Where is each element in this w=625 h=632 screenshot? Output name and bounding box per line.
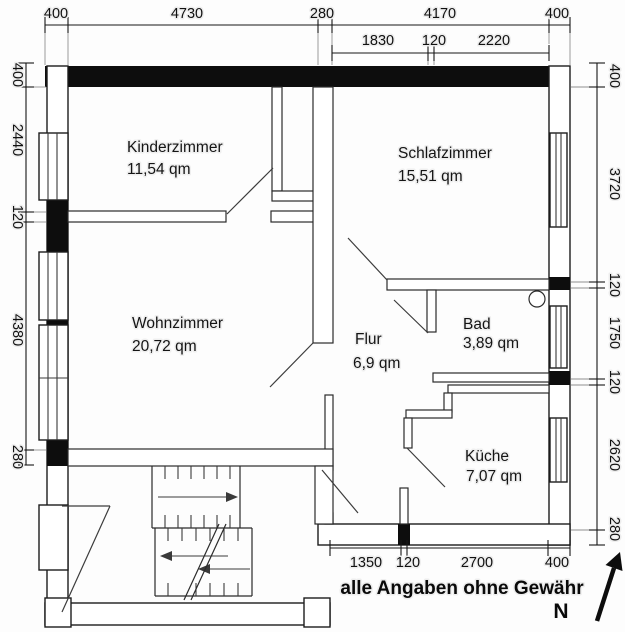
door-kinderzimmer [227, 168, 273, 214]
wall-top [45, 66, 570, 87]
disclaimer-text: alle Angaben ohne Gewähr [340, 578, 584, 599]
wall-bottom-solid [398, 524, 410, 545]
window-wohnzimmer-1 [39, 252, 68, 320]
wall-kinderzimmer-bottom [68, 211, 226, 222]
dim-top-4170: 4170 [424, 6, 456, 22]
dimensions-right: 400 3720 120 1750 120 2620 280 [571, 63, 622, 545]
dim-right-120a: 120 [606, 273, 622, 297]
dim-bottom-2700: 2700 [461, 555, 493, 571]
door-house-entrance-leaf [62, 506, 110, 612]
north-label: N [553, 600, 568, 623]
room-area-kueche: 7,07 qm [466, 468, 522, 485]
wall-bad-bottom [433, 373, 549, 382]
dim-top-4730: 4730 [171, 6, 203, 22]
wall-cap-right [304, 598, 330, 627]
dim-right-1750: 1750 [606, 317, 622, 349]
wall-kueche-nook-h [406, 410, 452, 418]
dim-left-280: 280 [9, 445, 25, 469]
dim-top2-2220: 2220 [478, 33, 510, 49]
floor-plan-page: 400 4730 280 4170 400 1830 120 2220 400 … [0, 0, 625, 632]
door-bad [394, 300, 428, 333]
window-schlafzimmer [550, 133, 567, 227]
door-schlafzimmer [348, 238, 387, 280]
room-area-flur: 6,9 qm [353, 355, 400, 372]
room-label-schlafzimmer: Schlafzimmer [398, 145, 492, 162]
wall-kueche-top [448, 385, 549, 393]
wall-kueche-left-upper [404, 418, 412, 448]
dim-right-3720: 3720 [606, 168, 622, 200]
door-wohnzimmer [270, 343, 313, 387]
dim-top-400a: 400 [44, 6, 68, 22]
window-kueche [550, 418, 567, 482]
wall-stairwell-bottom [45, 603, 330, 625]
wall-kueche-left-lower [400, 488, 408, 524]
wall-corridor [271, 211, 318, 222]
wall-kinderzimmer-right [272, 87, 282, 191]
room-area-schlafzimmer: 15,51 qm [398, 168, 463, 185]
dimensions-top: 400 4730 280 4170 400 1830 120 2220 [44, 6, 570, 65]
door-kueche [407, 448, 445, 487]
dim-right-400: 400 [606, 64, 622, 88]
room-label-kueche: Küche [465, 448, 509, 465]
wall-right-solid-2 [549, 371, 570, 385]
wall-right-solid-1 [549, 277, 570, 290]
room-label-flur: Flur [355, 331, 382, 348]
window-bad [550, 306, 567, 368]
dim-top2-1830: 1830 [362, 33, 394, 49]
wall-schlafzimmer-bottom [387, 279, 549, 290]
wall-left-solid-3 [47, 440, 68, 466]
wall-kueche-nook-v [444, 393, 452, 412]
dim-right-120b: 120 [606, 370, 622, 394]
wall-jut [272, 191, 318, 201]
dim-right-280: 280 [606, 517, 622, 541]
dim-left-400: 400 [9, 63, 25, 87]
room-label-kinderzimmer: Kinderzimmer [127, 139, 223, 156]
stairs-break-line [184, 524, 219, 600]
dim-right-2620: 2620 [606, 439, 622, 471]
wall-bad-left [427, 290, 436, 332]
room-area-kinderzimmer: 11,54 qm [127, 161, 190, 178]
floor-plan-svg: 400 4730 280 4170 400 1830 120 2220 400 … [0, 0, 625, 632]
dim-left-4380: 4380 [9, 314, 25, 346]
dim-bottom-1350: 1350 [350, 555, 382, 571]
dim-top2-120: 120 [422, 33, 446, 49]
dim-top-400b: 400 [545, 6, 569, 22]
wall-schlafzimmer-left [313, 87, 333, 343]
window-wohnzimmer-2 [39, 325, 68, 440]
wall-cap-left [45, 598, 71, 627]
north-arrow-icon [597, 552, 623, 621]
stairs [152, 466, 252, 600]
wall-bottom-right [318, 524, 570, 545]
dim-bottom-400: 400 [545, 555, 569, 571]
room-label-wohnzimmer: Wohnzimmer [132, 315, 223, 332]
dim-top-280: 280 [310, 6, 334, 22]
dim-left-120: 120 [9, 205, 25, 229]
window-kinderzimmer [39, 133, 68, 200]
dim-bottom-120: 120 [396, 555, 420, 571]
entrance-door-recess [39, 505, 68, 570]
dim-left-2440: 2440 [9, 124, 25, 156]
room-label-bad: Bad [463, 316, 491, 333]
wall-stairwell-right [315, 466, 333, 524]
wall-left-solid-1 [47, 193, 68, 252]
room-area-wohnzimmer: 20,72 qm [132, 338, 197, 355]
bathroom-sink-icon [529, 291, 545, 307]
room-area-bad: 3,89 qm [463, 335, 519, 352]
wall-wohnzimmer-bottom [68, 449, 333, 466]
